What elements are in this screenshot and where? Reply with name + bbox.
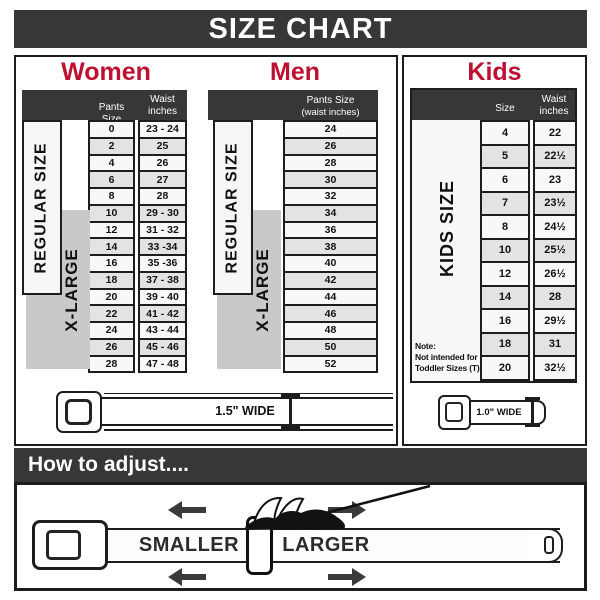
table-cell: 22½ [533,144,577,170]
men-col-header: Pants Size (waist inches) [283,95,378,118]
table-cell: 22 [533,120,577,146]
belt-measure-cap-bottom-large [281,426,300,429]
table-cell: 18 [480,332,530,358]
belt-measure-cap-top-large [281,394,300,397]
hand-icon [225,483,435,531]
women-regular-label: REGULAR SIZE [33,142,51,273]
adjust-belt-tip-slot [544,536,554,554]
belt-measure-cap-bottom-small [525,424,540,427]
kids-note: Note: Not intended for Toddler Sizes (T) [415,341,485,374]
belt-measure-bar-large [289,395,292,429]
women-waist-column: 23 - 242526272829 - 3031 - 3233 -3435 -3… [138,120,187,373]
belt-width-label-large: 1.5" WIDE [195,404,295,418]
table-cell: 23½ [533,191,577,217]
belt-width-label-small: 1.0" WIDE [470,407,528,418]
kids-col1-header: Size [480,103,530,115]
men-xlarge-label: X-LARGE [253,248,273,332]
adjust-section-title: How to adjust.... [14,448,587,482]
table-cell: 31 [533,332,577,358]
table-cell: 25½ [533,238,577,264]
kids-heading: Kids [402,58,587,87]
table-cell: 24½ [533,214,577,240]
table-cell: 32½ [533,355,577,381]
table-cell: 16 [480,308,530,334]
belt-buckle-large-inner [65,399,92,425]
table-cell: 8 [480,214,530,240]
kids-size-band: KIDS SIZE [414,122,480,334]
kids-waist-column: 2222½2323½24½25½26½2829½3132½ [533,120,577,380]
men-regular-label: REGULAR SIZE [224,142,242,273]
table-cell: 47 - 48 [138,355,187,374]
belt-measure-bar-small [531,398,534,426]
table-cell: 7 [480,191,530,217]
adjust-belt-buckle-inner [46,530,81,560]
kids-size-column: 45678101214161820 [480,120,530,380]
table-cell: 20 [480,355,530,381]
belt-outer-line-bottom [104,429,393,431]
table-cell: 6 [480,167,530,193]
women-heading: Women [12,58,200,87]
kids-col2-header: Waist inches [531,94,577,117]
men-heading: Men [200,58,390,87]
table-cell: 28 [533,285,577,311]
table-cell: 52 [283,355,378,374]
table-cell: 23 [533,167,577,193]
women-regular-band: REGULAR SIZE [22,120,62,295]
larger-label: LARGER [278,534,374,557]
women-col2-header: Waist inches [138,94,187,117]
table-cell: 5 [480,144,530,170]
kids-side-label: KIDS SIZE [437,179,458,276]
belt-measure-cap-top-small [525,397,540,400]
men-pants-size-column: 242628303234363840424446485052 [283,120,378,373]
belt-buckle-small-inner [445,402,463,422]
women-xlarge-label: X-LARGE [62,248,82,332]
page-title: SIZE CHART [14,10,587,48]
table-cell: 29½ [533,308,577,334]
table-cell: 4 [480,120,530,146]
smaller-arrow-bottom [168,568,206,586]
table-cell: 28 [88,355,135,374]
women-pants-size-column: 0246810121416182022242628 [88,120,135,373]
table-cell: 14 [480,285,530,311]
size-chart-infographic: SIZE CHART Women Men Kids Pants Size Wai… [0,0,600,600]
larger-arrow-bottom [328,568,366,586]
smaller-arrow-top [168,501,206,519]
belt-outer-line-top [104,393,393,395]
men-regular-band: REGULAR SIZE [213,120,253,295]
table-cell: 10 [480,238,530,264]
smaller-label: SMALLER [124,534,254,557]
table-cell: 26½ [533,261,577,287]
table-cell: 12 [480,261,530,287]
